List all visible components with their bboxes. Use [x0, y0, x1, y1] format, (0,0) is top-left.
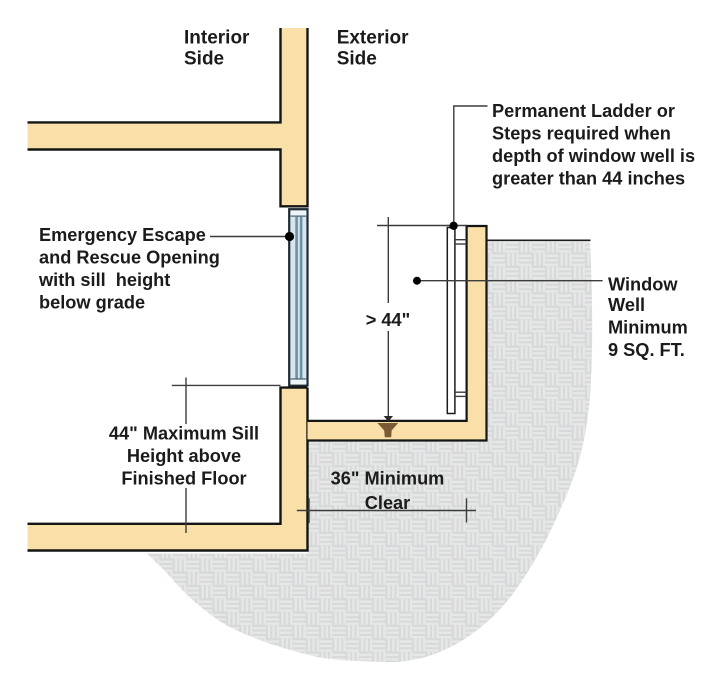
svg-text:below grade: below grade — [39, 292, 145, 312]
svg-text:9 SQ. FT.: 9 SQ. FT. — [608, 340, 685, 360]
svg-text:Side: Side — [337, 49, 377, 70]
svg-text:Side: Side — [184, 49, 224, 70]
svg-text:Emergency Escape: Emergency Escape — [39, 225, 206, 245]
svg-text:Steps required when: Steps required when — [492, 123, 671, 143]
svg-text:Window: Window — [608, 274, 678, 294]
svg-text:Exterior: Exterior — [337, 28, 409, 49]
svg-text:Interior: Interior — [184, 28, 250, 49]
svg-text:with sill height: with sill height — [38, 270, 170, 290]
svg-text:Height above: Height above — [127, 446, 241, 466]
svg-text:Clear: Clear — [365, 493, 411, 513]
svg-text:Finished Floor: Finished Floor — [121, 468, 246, 488]
svg-text:> 44": > 44" — [366, 310, 411, 330]
svg-text:Permanent Ladder or: Permanent Ladder or — [492, 101, 675, 121]
svg-text:depth of window well is: depth of window well is — [492, 146, 695, 166]
svg-text:greater than 44 inches: greater than 44 inches — [492, 168, 685, 188]
svg-text:Well: Well — [608, 295, 645, 315]
svg-text:36" Minimum: 36" Minimum — [331, 469, 445, 489]
svg-text:44" Maximum Sill: 44" Maximum Sill — [109, 423, 259, 443]
svg-text:and Rescue Opening: and Rescue Opening — [39, 247, 220, 267]
svg-text:Minimum: Minimum — [608, 317, 688, 337]
